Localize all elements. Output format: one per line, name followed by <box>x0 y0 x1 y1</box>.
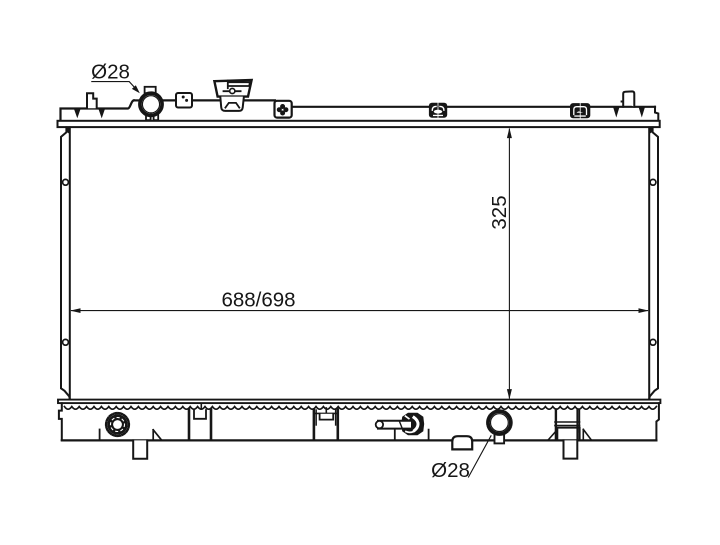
svg-text:325: 325 <box>488 195 511 229</box>
svg-text:Ø28: Ø28 <box>431 459 470 482</box>
svg-text:688/698: 688/698 <box>221 289 295 312</box>
svg-text:Ø28: Ø28 <box>91 61 130 84</box>
